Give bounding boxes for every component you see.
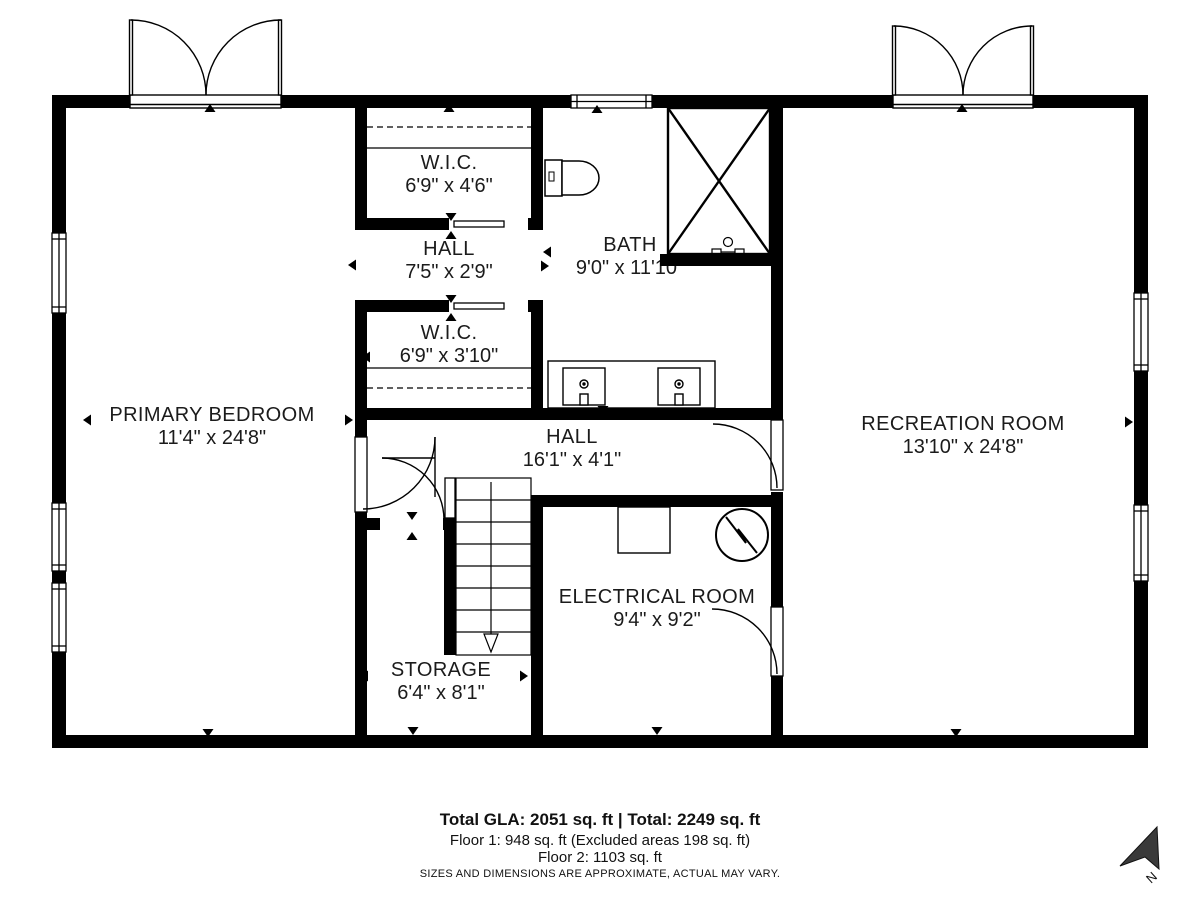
window-icon bbox=[1134, 293, 1148, 371]
wall-stairs-left bbox=[444, 518, 456, 655]
double-door-icon bbox=[893, 26, 1034, 108]
door-leaf-bedroom bbox=[355, 437, 367, 512]
door-leaf-electrical bbox=[771, 607, 783, 676]
wall-bedroom-right bbox=[355, 512, 367, 735]
room-dims: 7'5" x 2'9" bbox=[405, 261, 492, 284]
wall-wic1-left bbox=[355, 108, 367, 230]
sink-icon bbox=[658, 368, 700, 405]
footer-total-gla: Total GLA: 2051 sq. ft | Total: 2249 sq.… bbox=[0, 810, 1200, 830]
room-dims: 9'0" x 11'10" bbox=[576, 257, 684, 280]
room-label-primary-bedroom: PRIMARY BEDROOM 11'4" x 24'8" bbox=[109, 404, 314, 450]
door-swing-hall bbox=[713, 424, 777, 488]
window-icon bbox=[1134, 505, 1148, 581]
pocket-door-leaf-wic2 bbox=[454, 303, 504, 309]
window-icon bbox=[52, 503, 66, 571]
wall-wic2-top bbox=[355, 300, 543, 312]
interior-walls bbox=[355, 108, 783, 735]
room-dims: 6'4" x 8'1" bbox=[391, 682, 491, 705]
room-dims: 9'4" x 9'2" bbox=[559, 609, 755, 632]
footer-floor2: Floor 2: 1103 sq. ft bbox=[0, 849, 1200, 866]
shower-icon bbox=[668, 108, 770, 255]
window-icon bbox=[52, 583, 66, 652]
room-name: BATH bbox=[576, 234, 684, 257]
floor-plan-page: PRIMARY BEDROOM 11'4" x 24'8" W.I.C. 6'9… bbox=[0, 0, 1200, 900]
wall-bedroom-stub bbox=[355, 420, 367, 437]
double-door-icon bbox=[130, 20, 282, 108]
room-dims: 6'9" x 4'6" bbox=[405, 175, 492, 198]
wall-wic2-right bbox=[531, 300, 543, 420]
opening-wic1 bbox=[449, 218, 528, 230]
room-label-bath: BATH 9'0" x 11'10" bbox=[576, 234, 684, 280]
staircase-down-icon bbox=[456, 478, 531, 655]
electrical-panel-icon bbox=[618, 507, 670, 553]
room-label-wic-1: W.I.C. 6'9" x 4'6" bbox=[405, 152, 492, 198]
sink-icon bbox=[563, 368, 605, 405]
room-name: RECREATION ROOM bbox=[861, 413, 1064, 436]
room-dims: 16'1" x 4'1" bbox=[523, 449, 622, 472]
wall-recreation-west-upper bbox=[771, 108, 783, 420]
room-label-wic-2: W.I.C. 6'9" x 3'10" bbox=[400, 322, 499, 368]
vanity bbox=[548, 361, 715, 408]
wall-bottom bbox=[52, 735, 1148, 748]
wall-wic2-left bbox=[355, 300, 367, 420]
room-dims: 6'9" x 3'10" bbox=[400, 345, 499, 368]
windows bbox=[52, 95, 1148, 652]
room-label-hall-upper: HALL 7'5" x 2'9" bbox=[405, 238, 492, 284]
room-name: W.I.C. bbox=[400, 322, 499, 345]
room-label-storage: STORAGE 6'4" x 8'1" bbox=[391, 659, 491, 705]
room-dims: 13'10" x 24'8" bbox=[861, 436, 1064, 459]
room-name: W.I.C. bbox=[405, 152, 492, 175]
electric-meter-icon bbox=[716, 509, 768, 561]
door-swing-bedroom bbox=[363, 437, 435, 509]
opening-storage bbox=[380, 518, 443, 530]
room-name: ELECTRICAL ROOM bbox=[559, 586, 755, 609]
window-icon bbox=[52, 233, 66, 313]
door-swing-storage bbox=[382, 458, 444, 520]
footer-floor1: Floor 1: 948 sq. ft (Excluded areas 198 … bbox=[0, 832, 1200, 849]
room-dims: 11'4" x 24'8" bbox=[109, 427, 314, 450]
room-label-electrical-room: ELECTRICAL ROOM 9'4" x 9'2" bbox=[559, 586, 755, 632]
room-name: STORAGE bbox=[391, 659, 491, 682]
room-label-hall-lower: HALL 16'1" x 4'1" bbox=[523, 426, 622, 472]
wall-top bbox=[52, 95, 1148, 108]
door-leaf-hall bbox=[771, 420, 783, 490]
wall-left bbox=[52, 95, 66, 748]
toilet-icon bbox=[545, 160, 599, 196]
room-name: HALL bbox=[405, 238, 492, 261]
opening-stairs bbox=[445, 478, 455, 518]
footer-disclaimer: SIZES AND DIMENSIONS ARE APPROXIMATE, AC… bbox=[0, 868, 1200, 880]
wall-electrical-left bbox=[531, 495, 543, 735]
opening-wic2 bbox=[449, 300, 528, 312]
pocket-door-leaf-wic1 bbox=[454, 221, 504, 227]
room-name: PRIMARY BEDROOM bbox=[109, 404, 314, 427]
wall-electrical-top bbox=[531, 495, 783, 507]
wall-right bbox=[1134, 95, 1148, 748]
room-name: HALL bbox=[523, 426, 622, 449]
window-icon bbox=[571, 95, 652, 108]
wall-recreation-west-mid bbox=[771, 492, 783, 607]
wall-storage-top bbox=[355, 518, 456, 530]
wall-recreation-west-lower bbox=[771, 676, 783, 735]
wall-wic1-right bbox=[531, 108, 543, 230]
wall-wic1-bottom bbox=[355, 218, 543, 230]
room-label-recreation-room: RECREATION ROOM 13'10" x 24'8" bbox=[861, 413, 1064, 459]
wall-hall-top bbox=[355, 408, 783, 420]
